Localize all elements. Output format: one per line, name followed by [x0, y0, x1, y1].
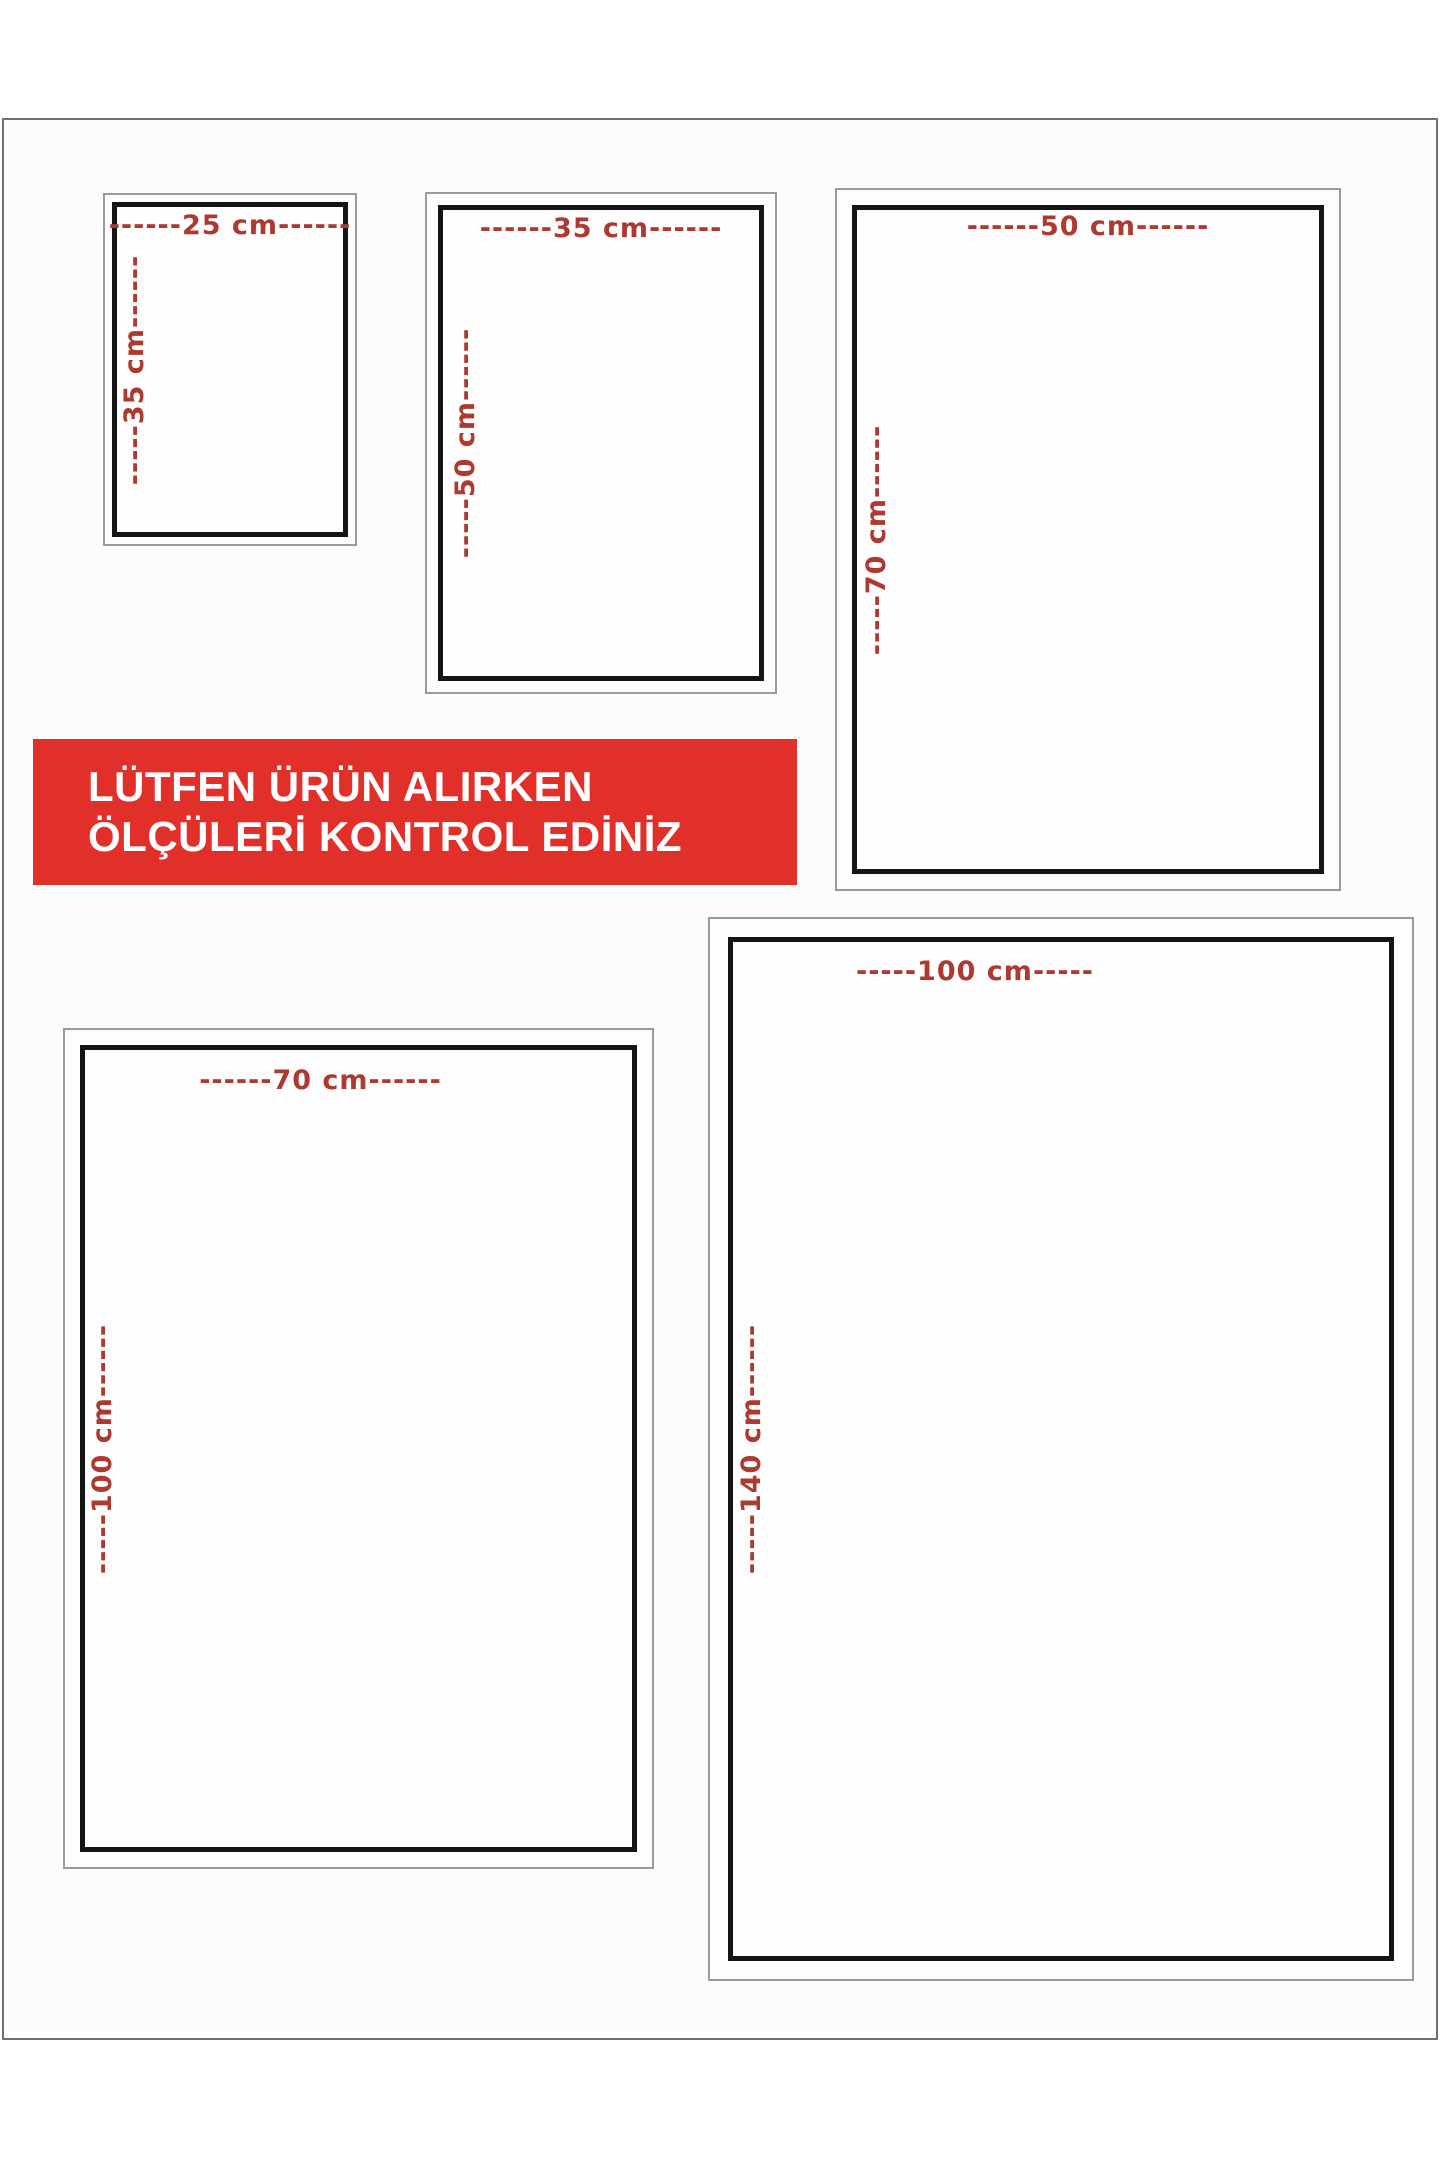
size-box-50x70: ------50 cm------ -----70 cm------: [835, 188, 1341, 891]
height-label-35cm: -----35 cm------: [119, 254, 151, 484]
warning-banner-line1: LÜTFEN ÜRÜN ALIRKEN: [88, 762, 797, 812]
size-box-70x100-border: ------70 cm------ -----100 cm------: [80, 1045, 637, 1852]
width-label-35cm: ------35 cm------: [480, 213, 723, 245]
warning-banner: LÜTFEN ÜRÜN ALIRKEN ÖLÇÜLERİ KONTROL EDİ…: [33, 739, 797, 885]
width-label-100cm: -----100 cm-----: [856, 956, 1094, 988]
width-label-50cm: ------50 cm------: [967, 211, 1210, 243]
height-label-140cm: -----140 cm------: [736, 1324, 768, 1574]
warning-banner-line2: ÖLÇÜLERİ KONTROL EDİNİZ: [88, 812, 797, 862]
size-box-35x50-border: ------35 cm------ -----50 cm------: [438, 205, 764, 681]
height-label-70cm: -----70 cm------: [861, 424, 893, 654]
width-label-25cm: ------25 cm------: [109, 210, 352, 242]
height-label-100cm: -----100 cm------: [87, 1323, 119, 1573]
width-label-70cm: ------70 cm------: [199, 1065, 442, 1097]
size-box-25x35: ------25 cm------ -----35 cm------: [103, 193, 357, 546]
size-box-100x140: -----100 cm----- -----140 cm------: [708, 917, 1414, 1981]
size-box-50x70-border: ------50 cm------ -----70 cm------: [852, 205, 1324, 874]
size-box-25x35-border: ------25 cm------ -----35 cm------: [112, 202, 348, 537]
size-box-100x140-border: -----100 cm----- -----140 cm------: [728, 937, 1394, 1961]
height-label-50cm: -----50 cm------: [450, 328, 482, 558]
size-box-70x100: ------70 cm------ -----100 cm------: [63, 1028, 654, 1869]
size-box-35x50: ------35 cm------ -----50 cm------: [425, 192, 777, 694]
